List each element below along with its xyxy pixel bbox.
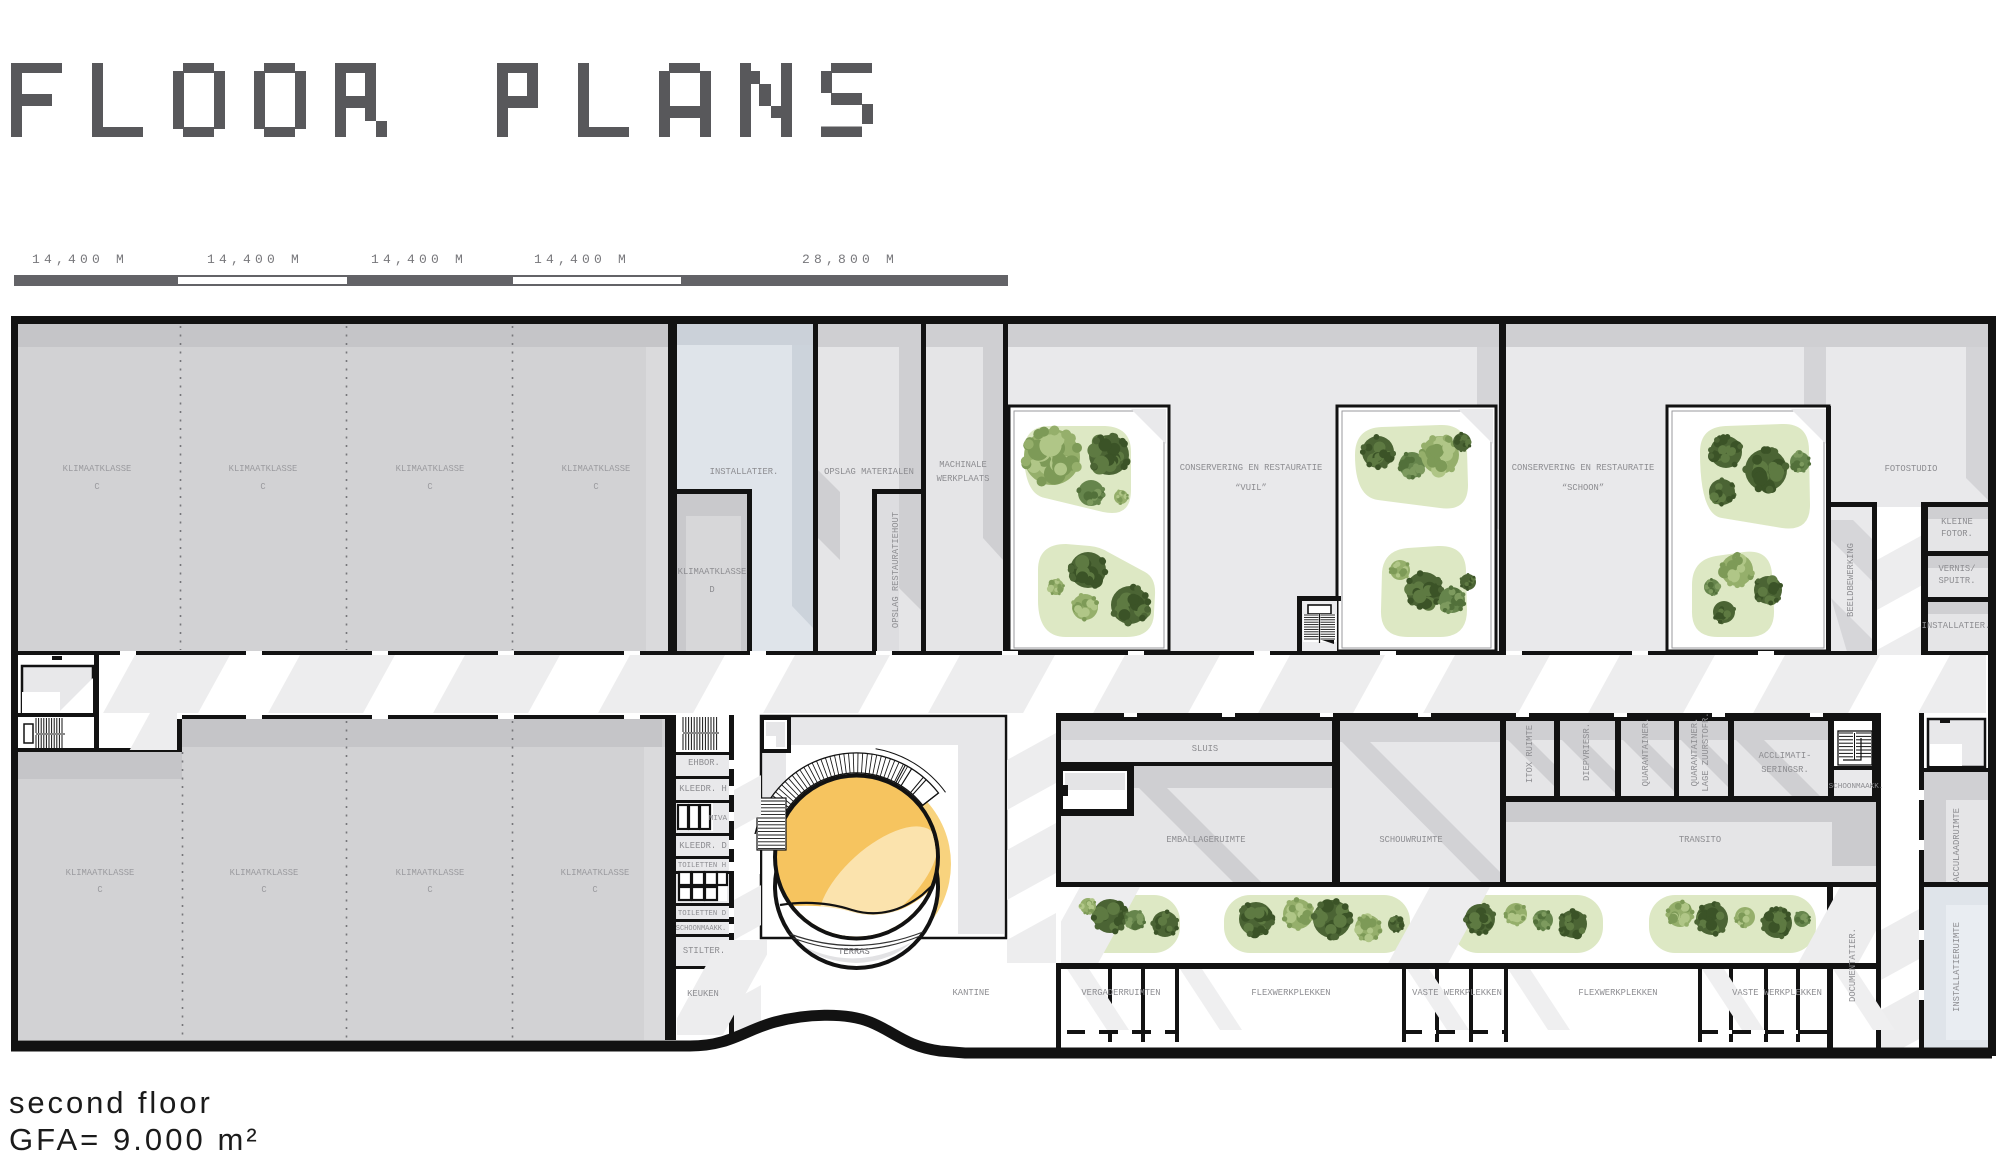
svg-text:C: C: [97, 885, 102, 895]
svg-text:ACCLIMATI-: ACCLIMATI-: [1759, 751, 1812, 761]
svg-text:SLUIS: SLUIS: [1192, 744, 1218, 754]
svg-text:KLEINE: KLEINE: [1941, 517, 1973, 527]
svg-text:14,400 M: 14,400 M: [371, 252, 467, 267]
svg-text:KLIMAATKLASSE: KLIMAATKLASSE: [678, 567, 747, 577]
svg-text:ACCULAADRUIMTE: ACCULAADRUIMTE: [1952, 808, 1962, 882]
svg-text:“SCHOON”: “SCHOON”: [1562, 483, 1604, 493]
svg-text:EMBALLAGERUIMTE: EMBALLAGERUIMTE: [1166, 835, 1245, 845]
svg-text:KEUKEN: KEUKEN: [687, 989, 719, 999]
svg-text:C: C: [427, 885, 432, 895]
svg-text:KLIMAATKLASSE: KLIMAATKLASSE: [562, 464, 631, 474]
svg-text:KLIMAATKLASSE: KLIMAATKLASSE: [230, 868, 299, 878]
svg-text:TRANSITO: TRANSITO: [1679, 835, 1721, 845]
svg-text:C: C: [260, 482, 265, 492]
svg-text:FOTOR.: FOTOR.: [1941, 529, 1973, 539]
svg-text:VASTE WERKPLEKKEN: VASTE WERKPLEKKEN: [1412, 988, 1502, 998]
svg-text:INSTALLATIER.: INSTALLATIER.: [710, 467, 779, 477]
svg-text:KLEEDR. D: KLEEDR. D: [679, 841, 727, 851]
svg-text:DIEPVRIESR.: DIEPVRIESR.: [1582, 723, 1592, 781]
svg-text:C: C: [427, 482, 432, 492]
svg-text:KLIMAATKLASSE: KLIMAATKLASSE: [396, 464, 465, 474]
svg-text:WERKPLAATS: WERKPLAATS: [937, 474, 990, 484]
svg-text:SCHOONMAAKK.: SCHOONMAAKK.: [1829, 783, 1884, 791]
svg-text:14,400 M: 14,400 M: [207, 252, 303, 267]
svg-text:VERGADERRUIMTEN: VERGADERRUIMTEN: [1081, 988, 1160, 998]
svg-text:FLEXWERKPLEKKEN: FLEXWERKPLEKKEN: [1251, 988, 1330, 998]
svg-text:DOCUMENTATIER.: DOCUMENTATIER.: [1848, 928, 1858, 1002]
svg-text:TOILETTEN D: TOILETTEN D: [678, 910, 727, 918]
svg-text:VERNIS/: VERNIS/: [1939, 564, 1976, 574]
svg-text:MACHINALE: MACHINALE: [939, 460, 987, 470]
svg-text:C: C: [592, 885, 597, 895]
svg-text:ITOX RUIMTE: ITOX RUIMTE: [1525, 725, 1535, 783]
svg-text:SCHOONMAAKK.: SCHOONMAAKK.: [676, 925, 726, 933]
svg-text:INSTALLATIERUIMTE: INSTALLATIERUIMTE: [1952, 922, 1962, 1012]
svg-text:28,800 M: 28,800 M: [802, 252, 898, 267]
svg-text:OPSLAG MATERIALEN: OPSLAG MATERIALEN: [824, 467, 914, 477]
svg-text:CONSERVERING EN RESTAURATIE: CONSERVERING EN RESTAURATIE: [1180, 463, 1323, 473]
svg-text:SCHOUWRUIMTE: SCHOUWRUIMTE: [1379, 835, 1442, 845]
svg-text:OPSLAG RESTAURATIEHOUT: OPSLAG RESTAURATIEHOUT: [891, 512, 901, 628]
svg-text:LAGE ZUURSTOFR.: LAGE ZUURSTOFR.: [1701, 712, 1711, 791]
svg-text:CONSERVERING EN RESTAURATIE: CONSERVERING EN RESTAURATIE: [1512, 463, 1655, 473]
svg-text:SPUITR.: SPUITR.: [1939, 576, 1976, 586]
svg-text:QUARANTAINER.: QUARANTAINER.: [1690, 718, 1700, 787]
svg-text:TOILETTEN H: TOILETTEN H: [678, 862, 726, 870]
svg-text:KLIMAATKLASSE: KLIMAATKLASSE: [229, 464, 298, 474]
svg-text:KANTINE: KANTINE: [953, 988, 990, 998]
svg-text:C: C: [94, 482, 99, 492]
svg-text:VASTE WERKPLEKKEN: VASTE WERKPLEKKEN: [1732, 988, 1822, 998]
svg-text:STILTER.: STILTER.: [683, 946, 725, 956]
svg-text:KLIMAATKLASSE: KLIMAATKLASSE: [561, 868, 630, 878]
svg-text:KLIMAATKLASSE: KLIMAATKLASSE: [396, 868, 465, 878]
svg-text:KLEEDR. H: KLEEDR. H: [679, 784, 727, 794]
svg-text:BEELDBEWERKING: BEELDBEWERKING: [1846, 543, 1856, 617]
svg-text:14,400 M: 14,400 M: [534, 252, 630, 267]
svg-text:QUARANTAINER.: QUARANTAINER.: [1641, 718, 1651, 787]
svg-text:FLEXWERKPLEKKEN: FLEXWERKPLEKKEN: [1578, 988, 1657, 998]
svg-text:D: D: [709, 585, 714, 595]
svg-text:KLIMAATKLASSE: KLIMAATKLASSE: [63, 464, 132, 474]
svg-text:MIVA: MIVA: [709, 815, 728, 823]
svg-text:EHBOR.: EHBOR.: [688, 758, 720, 768]
svg-text:second floor: second floor: [9, 1085, 213, 1120]
svg-text:KLIMAATKLASSE: KLIMAATKLASSE: [66, 868, 135, 878]
svg-text:C: C: [593, 482, 598, 492]
svg-text:“VUIL”: “VUIL”: [1235, 483, 1267, 493]
svg-text:FOTOSTUDIO: FOTOSTUDIO: [1885, 464, 1938, 474]
svg-text:14,400 M: 14,400 M: [32, 252, 128, 267]
svg-text:C: C: [261, 885, 266, 895]
svg-text:GFA= 9.000 m²: GFA= 9.000 m²: [9, 1122, 260, 1157]
svg-text:SERINGSR.: SERINGSR.: [1761, 765, 1809, 775]
svg-text:TERRAS: TERRAS: [838, 947, 870, 957]
svg-text:INSTALLATIER.: INSTALLATIER.: [1922, 621, 1991, 631]
